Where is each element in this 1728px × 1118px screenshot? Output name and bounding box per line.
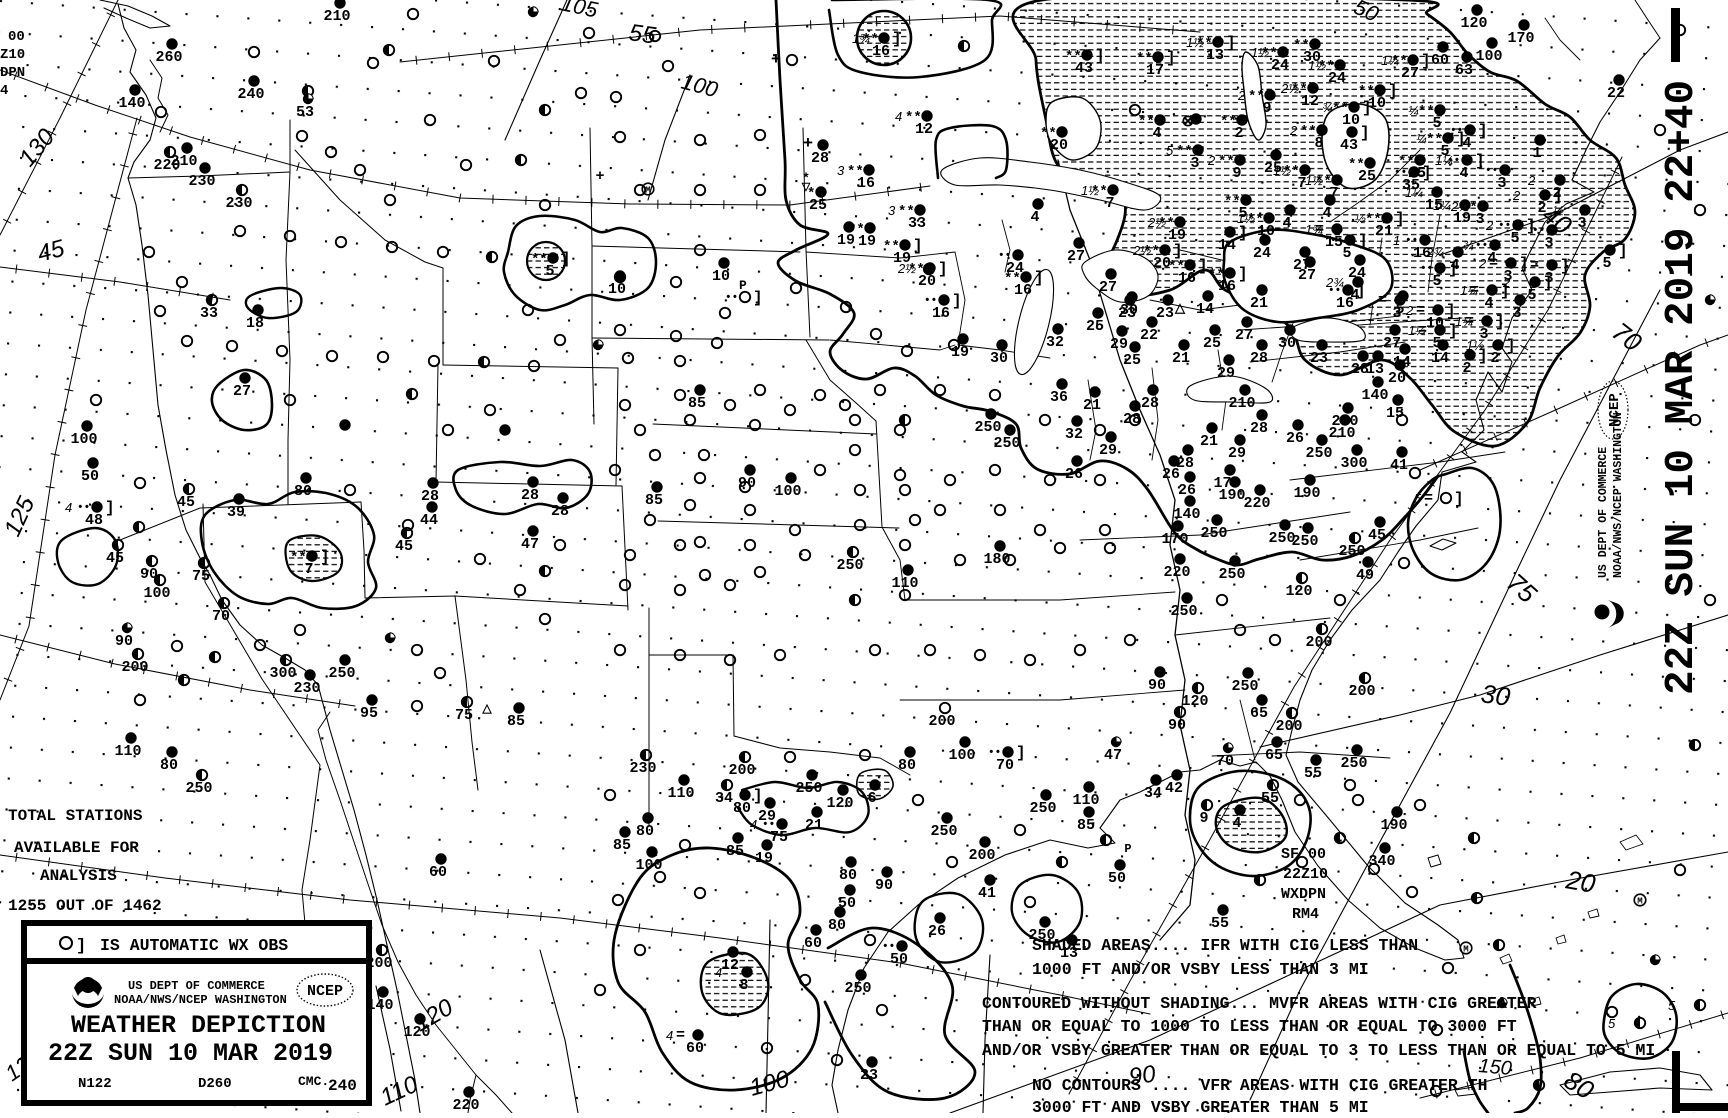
svg-text:250: 250 bbox=[844, 980, 871, 997]
svg-text:25: 25 bbox=[1123, 352, 1141, 369]
svg-text:85: 85 bbox=[507, 713, 525, 730]
svg-text:2: 2 bbox=[1512, 188, 1521, 203]
svg-text:85: 85 bbox=[688, 395, 706, 412]
svg-text:21: 21 bbox=[1083, 397, 1101, 414]
svg-text:100: 100 bbox=[948, 747, 975, 764]
svg-text:14: 14 bbox=[1218, 237, 1236, 254]
svg-text:4: 4 bbox=[1487, 250, 1496, 267]
svg-text:26: 26 bbox=[928, 923, 946, 940]
svg-text:25: 25 bbox=[1086, 318, 1104, 335]
svg-text:]: ] bbox=[1448, 260, 1458, 278]
svg-text:M: M bbox=[1463, 945, 1468, 955]
svg-text:20: 20 bbox=[1563, 864, 1598, 899]
svg-text:2: 2 bbox=[1485, 218, 1494, 233]
svg-text:60: 60 bbox=[804, 935, 822, 952]
svg-text:]: ] bbox=[1166, 49, 1176, 67]
svg-text:**: ** bbox=[1283, 164, 1300, 180]
svg-text:5: 5 bbox=[1510, 230, 1519, 247]
svg-text:5: 5 bbox=[1414, 491, 1422, 506]
svg-text:]: ] bbox=[1238, 265, 1248, 283]
svg-text:]: ] bbox=[938, 260, 948, 278]
svg-text:**: ** bbox=[1318, 59, 1335, 75]
svg-text:29: 29 bbox=[1110, 336, 1128, 353]
svg-text:230: 230 bbox=[629, 760, 656, 777]
svg-text:100: 100 bbox=[70, 431, 97, 448]
svg-text:]: ] bbox=[753, 787, 763, 805]
svg-text:]: ] bbox=[1095, 47, 1105, 65]
svg-text:5: 5 bbox=[1432, 335, 1441, 352]
svg-text:3: 3 bbox=[1512, 305, 1521, 322]
svg-text:4: 4 bbox=[1322, 205, 1331, 222]
svg-text:190: 190 bbox=[1293, 485, 1320, 502]
svg-text:250: 250 bbox=[185, 780, 212, 797]
svg-text:80: 80 bbox=[636, 823, 654, 840]
svg-text:]: ] bbox=[1388, 82, 1398, 100]
svg-text:2¾: 2¾ bbox=[1325, 275, 1344, 290]
svg-text:65: 65 bbox=[1265, 747, 1283, 764]
svg-text:AVAILABLE FOR: AVAILABLE FOR bbox=[14, 839, 139, 857]
svg-text:]: ] bbox=[1495, 313, 1505, 331]
svg-text:32: 32 bbox=[1046, 334, 1064, 351]
svg-text:]: ] bbox=[1034, 269, 1044, 287]
svg-text:250: 250 bbox=[795, 780, 822, 797]
svg-text:4: 4 bbox=[895, 109, 902, 124]
svg-text:28: 28 bbox=[1141, 395, 1159, 412]
svg-text:55: 55 bbox=[1304, 765, 1322, 782]
svg-text:**: ** bbox=[1358, 84, 1375, 100]
svg-text:**: ** bbox=[1224, 194, 1241, 210]
svg-text:**: ** bbox=[1315, 174, 1332, 190]
svg-text:170: 170 bbox=[1213, 475, 1240, 492]
svg-text:30: 30 bbox=[1278, 335, 1296, 352]
svg-text:27: 27 bbox=[1235, 327, 1253, 344]
svg-text:27: 27 bbox=[1383, 335, 1401, 352]
svg-text:27: 27 bbox=[233, 383, 251, 400]
svg-text:**: ** bbox=[862, 32, 879, 48]
svg-text:22: 22 bbox=[1140, 327, 1158, 344]
svg-text:300: 300 bbox=[269, 665, 296, 682]
svg-text:120: 120 bbox=[826, 795, 853, 812]
svg-text:24: 24 bbox=[1006, 260, 1024, 277]
svg-text:200: 200 bbox=[1305, 634, 1332, 651]
svg-text:WEATHER DEPICTION: WEATHER DEPICTION bbox=[71, 1011, 326, 1040]
svg-text:]: ] bbox=[1226, 34, 1236, 52]
svg-text:**: ** bbox=[1208, 267, 1225, 283]
svg-text:P: P bbox=[739, 278, 747, 293]
svg-text:M: M bbox=[645, 186, 650, 196]
svg-text:49: 49 bbox=[1356, 567, 1374, 584]
svg-text:110: 110 bbox=[667, 785, 694, 802]
svg-text:80: 80 bbox=[828, 917, 846, 934]
svg-text:10: 10 bbox=[712, 268, 730, 285]
svg-text:**: ** bbox=[1291, 82, 1308, 98]
svg-text:**: ** bbox=[1248, 89, 1265, 105]
svg-text:••: •• bbox=[1498, 220, 1511, 232]
svg-text:190: 190 bbox=[1380, 817, 1407, 834]
svg-text:]: ] bbox=[1173, 242, 1183, 260]
svg-text:5: 5 bbox=[1668, 998, 1676, 1013]
svg-text:CMC.: CMC. bbox=[298, 1074, 329, 1089]
svg-text:27: 27 bbox=[1099, 279, 1117, 296]
svg-text:]: ] bbox=[76, 937, 86, 956]
svg-text:28: 28 bbox=[521, 487, 539, 504]
svg-text:60: 60 bbox=[429, 864, 447, 881]
svg-text:50: 50 bbox=[81, 468, 99, 485]
svg-text:••: •• bbox=[725, 292, 738, 304]
svg-text:19: 19 bbox=[951, 344, 969, 361]
svg-text:Z10: Z10 bbox=[0, 47, 25, 63]
svg-text:••: •• bbox=[882, 941, 895, 953]
svg-text:14: 14 bbox=[1393, 354, 1411, 371]
svg-text:41: 41 bbox=[978, 885, 996, 902]
svg-text:]: ] bbox=[892, 30, 902, 48]
svg-text:85: 85 bbox=[645, 492, 663, 509]
svg-text:29: 29 bbox=[758, 808, 776, 825]
svg-text:14: 14 bbox=[1196, 301, 1214, 318]
svg-text:41: 41 bbox=[1390, 457, 1408, 474]
svg-text:80: 80 bbox=[160, 757, 178, 774]
svg-text:210: 210 bbox=[323, 8, 350, 25]
svg-text:240: 240 bbox=[237, 86, 264, 103]
svg-text:3: 3 bbox=[1544, 270, 1553, 287]
svg-text:90: 90 bbox=[115, 633, 133, 650]
svg-text:250: 250 bbox=[1200, 525, 1227, 542]
svg-text:NCEP: NCEP bbox=[1607, 393, 1623, 427]
svg-text:250: 250 bbox=[1340, 755, 1367, 772]
svg-text:••: •• bbox=[1485, 165, 1498, 177]
svg-text:43: 43 bbox=[1340, 137, 1358, 154]
svg-text:**: ** bbox=[1143, 244, 1160, 260]
svg-text:34: 34 bbox=[715, 790, 733, 807]
svg-text:2: 2 bbox=[1462, 360, 1471, 377]
svg-text:]: ] bbox=[1519, 255, 1529, 273]
svg-text:210: 210 bbox=[1228, 395, 1255, 412]
svg-text:50: 50 bbox=[890, 951, 908, 968]
svg-text:80: 80 bbox=[839, 867, 857, 884]
svg-text:]: ] bbox=[1560, 257, 1570, 275]
svg-text:**: ** bbox=[1168, 259, 1185, 275]
svg-text:2: 2 bbox=[1289, 123, 1298, 138]
svg-text:85: 85 bbox=[613, 837, 631, 854]
svg-text:45: 45 bbox=[177, 494, 195, 511]
svg-text:DPN: DPN bbox=[0, 65, 25, 81]
svg-text:23: 23 bbox=[1310, 350, 1328, 367]
svg-text:28: 28 bbox=[1123, 411, 1141, 428]
svg-text:30: 30 bbox=[1120, 302, 1138, 319]
svg-text:]: ] bbox=[1198, 257, 1208, 275]
svg-text:240: 240 bbox=[328, 1077, 357, 1095]
svg-text:△: △ bbox=[1174, 301, 1186, 316]
svg-text:45: 45 bbox=[395, 538, 413, 555]
svg-text:200: 200 bbox=[1275, 718, 1302, 735]
svg-text:TOTAL STATIONS: TOTAL STATIONS bbox=[8, 807, 143, 825]
svg-text:250: 250 bbox=[328, 665, 355, 682]
svg-text:170: 170 bbox=[1161, 531, 1188, 548]
svg-text:29: 29 bbox=[1099, 442, 1117, 459]
svg-text:NO CONTOURS .... VFR AREAS WIT: NO CONTOURS .... VFR AREAS WITH CIG GREA… bbox=[1032, 1076, 1487, 1095]
svg-text:90: 90 bbox=[875, 877, 893, 894]
svg-text:25: 25 bbox=[1203, 335, 1221, 352]
svg-text:**: ** bbox=[1040, 126, 1057, 142]
svg-text:½: ½ bbox=[1553, 203, 1564, 218]
svg-text:]: ] bbox=[1448, 322, 1458, 340]
svg-text:120: 120 bbox=[403, 1024, 430, 1041]
svg-text:27: 27 bbox=[1298, 267, 1316, 284]
svg-text:250: 250 bbox=[1029, 800, 1056, 817]
svg-text:70: 70 bbox=[1216, 753, 1234, 770]
svg-text:**: ** bbox=[1176, 144, 1193, 160]
svg-text:3: 3 bbox=[1497, 175, 1506, 192]
svg-text:N122: N122 bbox=[78, 1076, 112, 1092]
svg-text:US DEPT OF COMMERCE: US DEPT OF COMMERCE bbox=[1597, 447, 1610, 578]
svg-text:45: 45 bbox=[106, 550, 124, 567]
svg-text:**: ** bbox=[1332, 101, 1349, 117]
svg-text:=: = bbox=[1470, 282, 1479, 299]
svg-text:95: 95 bbox=[360, 705, 378, 722]
svg-text:2: 2 bbox=[1207, 153, 1216, 168]
svg-text:**: ** bbox=[1261, 46, 1278, 62]
svg-text:53: 53 bbox=[296, 104, 314, 121]
svg-text:90: 90 bbox=[1148, 677, 1166, 694]
svg-text:250: 250 bbox=[1170, 603, 1197, 620]
svg-text:200: 200 bbox=[121, 659, 148, 676]
svg-text:85: 85 bbox=[1077, 817, 1095, 834]
svg-text:55: 55 bbox=[1261, 790, 1279, 807]
svg-text:••: •• bbox=[77, 502, 90, 514]
svg-text:28: 28 bbox=[1250, 420, 1268, 437]
svg-text:**: ** bbox=[883, 239, 900, 255]
svg-text:100: 100 bbox=[774, 483, 801, 500]
svg-text:=: = bbox=[1378, 292, 1387, 309]
svg-text:80: 80 bbox=[733, 800, 751, 817]
svg-text:=: = bbox=[1424, 490, 1433, 507]
svg-text:4: 4 bbox=[750, 817, 757, 832]
svg-text:28: 28 bbox=[551, 503, 569, 520]
svg-text:30: 30 bbox=[990, 350, 1008, 367]
svg-text:28: 28 bbox=[811, 150, 829, 167]
svg-text:••: •• bbox=[998, 250, 1011, 262]
svg-text:ANALYSIS: ANALYSIS bbox=[40, 867, 117, 885]
svg-text:5: 5 bbox=[1527, 287, 1536, 304]
svg-text:250: 250 bbox=[1218, 566, 1245, 583]
svg-text:WXDPN: WXDPN bbox=[1281, 886, 1326, 903]
svg-text:220: 220 bbox=[452, 1097, 479, 1113]
svg-text:10: 10 bbox=[608, 281, 626, 298]
svg-text:1¼: 1¼ bbox=[1405, 185, 1423, 200]
svg-text:120: 120 bbox=[1285, 583, 1312, 600]
svg-text:4: 4 bbox=[1350, 287, 1359, 304]
svg-text:8: 8 bbox=[739, 977, 748, 994]
svg-text:340: 340 bbox=[1368, 853, 1395, 870]
svg-text:]: ] bbox=[1478, 122, 1488, 140]
svg-text:19: 19 bbox=[1453, 210, 1471, 227]
svg-text:2: 2 bbox=[1237, 88, 1246, 103]
svg-text:1: 1 bbox=[1393, 233, 1400, 248]
svg-text:]: ] bbox=[1500, 282, 1510, 300]
svg-text:250: 250 bbox=[1231, 678, 1258, 695]
svg-text:••: •• bbox=[1420, 263, 1433, 275]
svg-text:]: ] bbox=[561, 250, 571, 268]
svg-text:D260: D260 bbox=[198, 1076, 232, 1092]
svg-text:19: 19 bbox=[755, 850, 773, 867]
svg-text:**: ** bbox=[1398, 154, 1415, 170]
svg-text:140: 140 bbox=[1361, 387, 1388, 404]
svg-text:47: 47 bbox=[1104, 747, 1122, 764]
svg-text:]: ] bbox=[1553, 187, 1563, 205]
svg-text:300: 300 bbox=[1340, 455, 1367, 472]
svg-text:27: 27 bbox=[1067, 248, 1085, 265]
svg-text:**: ** bbox=[1247, 212, 1264, 228]
svg-text:21: 21 bbox=[805, 817, 823, 834]
svg-text:AND/OR VSBY GREATER THAN OR EQ: AND/OR VSBY GREATER THAN OR EQUAL TO 3 T… bbox=[982, 1041, 1655, 1060]
svg-text:]: ] bbox=[1016, 744, 1026, 762]
svg-text:230: 230 bbox=[225, 195, 252, 212]
svg-text:250: 250 bbox=[930, 823, 957, 840]
svg-text:**: ** bbox=[1091, 184, 1108, 200]
svg-text:**: ** bbox=[1136, 51, 1153, 67]
svg-text:2: 2 bbox=[1527, 173, 1536, 188]
svg-text:170: 170 bbox=[1507, 30, 1534, 47]
svg-text:⊗: ⊗ bbox=[1181, 113, 1194, 131]
svg-text:2: 2 bbox=[1405, 303, 1414, 318]
svg-text:180: 180 bbox=[983, 551, 1010, 568]
svg-text:SF 00: SF 00 bbox=[1281, 846, 1326, 863]
svg-text:42: 42 bbox=[1165, 780, 1183, 797]
svg-text:39: 39 bbox=[227, 504, 245, 521]
svg-text:M: M bbox=[1637, 897, 1642, 907]
svg-text:1: 1 bbox=[1532, 145, 1541, 162]
svg-text:60: 60 bbox=[1431, 52, 1449, 69]
svg-text:**: ** bbox=[1293, 38, 1310, 54]
svg-text:1¼: 1¼ bbox=[1433, 198, 1451, 213]
svg-text:250: 250 bbox=[993, 435, 1020, 452]
svg-text:4: 4 bbox=[666, 1028, 673, 1043]
svg-text:P: P bbox=[1124, 842, 1131, 856]
svg-text:]: ] bbox=[913, 237, 923, 255]
svg-text:SHADED AREAS.... IFR WITH CIG: SHADED AREAS.... IFR WITH CIG LESS THAN bbox=[1032, 936, 1418, 955]
svg-text:12: 12 bbox=[721, 957, 739, 974]
svg-text:4: 4 bbox=[1484, 295, 1493, 312]
svg-text:IS AUTOMATIC WX OBS: IS AUTOMATIC WX OBS bbox=[100, 936, 288, 955]
svg-text:RM4: RM4 bbox=[1292, 906, 1319, 923]
svg-text:250: 250 bbox=[836, 557, 863, 574]
svg-text:¾: ¾ bbox=[1463, 238, 1474, 253]
svg-text:4: 4 bbox=[1459, 165, 1468, 182]
svg-text:+: + bbox=[771, 51, 781, 70]
svg-text:32: 32 bbox=[1065, 426, 1083, 443]
svg-text:••: •• bbox=[1405, 235, 1418, 247]
svg-text:29: 29 bbox=[1228, 445, 1246, 462]
svg-text:220: 220 bbox=[1243, 495, 1270, 512]
svg-text:4: 4 bbox=[0, 83, 8, 99]
svg-text:28: 28 bbox=[1176, 455, 1194, 472]
svg-text:250: 250 bbox=[1338, 543, 1365, 560]
svg-text:3: 3 bbox=[837, 163, 845, 178]
svg-text:]: ] bbox=[952, 292, 962, 310]
svg-text:22Z SUN 10 MAR 2019 22+40: 22Z SUN 10 MAR 2019 22+40 bbox=[1659, 80, 1705, 695]
svg-text:75: 75 bbox=[455, 707, 473, 724]
svg-text:30: 30 bbox=[1479, 678, 1512, 712]
svg-text:20: 20 bbox=[1388, 370, 1406, 387]
svg-text:••: •• bbox=[1447, 155, 1460, 167]
svg-text:••: •• bbox=[988, 747, 1001, 759]
svg-text:210: 210 bbox=[1328, 425, 1355, 442]
svg-text:NCEP: NCEP bbox=[307, 983, 343, 1000]
svg-text:]: ] bbox=[1478, 347, 1488, 365]
svg-text:**: ** bbox=[1426, 132, 1443, 148]
svg-text:]: ] bbox=[1358, 232, 1368, 250]
svg-text:100: 100 bbox=[143, 585, 170, 602]
svg-text:36: 36 bbox=[1050, 389, 1068, 406]
svg-text:200: 200 bbox=[928, 713, 955, 730]
svg-text:**: ** bbox=[1218, 154, 1235, 170]
svg-text:+: + bbox=[595, 168, 604, 185]
svg-text:2: 2 bbox=[1537, 200, 1546, 217]
svg-text:2: 2 bbox=[1478, 256, 1487, 271]
svg-text:]: ] bbox=[105, 499, 115, 517]
svg-text:80: 80 bbox=[294, 483, 312, 500]
svg-text:24: 24 bbox=[1253, 245, 1271, 262]
svg-text:**: ** bbox=[1348, 157, 1365, 173]
svg-text:**: ** bbox=[1158, 216, 1175, 232]
svg-text:]: ] bbox=[1395, 210, 1405, 228]
svg-text:CONTOURED WITHOUT SHADING... M: CONTOURED WITHOUT SHADING... MVFR AREAS … bbox=[982, 994, 1537, 1013]
svg-text:5: 5 bbox=[1166, 143, 1174, 158]
svg-text:9: 9 bbox=[1199, 810, 1208, 827]
svg-text:21: 21 bbox=[1172, 350, 1190, 367]
svg-text:75: 75 bbox=[770, 829, 788, 846]
svg-text:1255 OUT OF 1462: 1255 OUT OF 1462 bbox=[8, 897, 162, 915]
svg-text:4: 4 bbox=[1030, 209, 1039, 226]
svg-text:200: 200 bbox=[728, 762, 755, 779]
svg-text:16: 16 bbox=[1413, 245, 1431, 262]
svg-text:••: •• bbox=[924, 295, 937, 307]
svg-text:4: 4 bbox=[1232, 815, 1241, 832]
svg-text:50: 50 bbox=[1108, 870, 1126, 887]
svg-text:48: 48 bbox=[85, 512, 103, 529]
svg-text:3000 FT AND VSBY GREATER THAN: 3000 FT AND VSBY GREATER THAN 5 MI bbox=[1032, 1098, 1369, 1113]
svg-text:120: 120 bbox=[1181, 693, 1208, 710]
svg-text:00: 00 bbox=[8, 29, 25, 45]
svg-text:**: ** bbox=[1065, 49, 1082, 65]
svg-text:55: 55 bbox=[627, 19, 658, 50]
svg-text:200: 200 bbox=[968, 847, 995, 864]
svg-text:100: 100 bbox=[1475, 48, 1502, 65]
svg-text:22Z10: 22Z10 bbox=[1283, 866, 1328, 883]
svg-text:250: 250 bbox=[974, 419, 1001, 436]
svg-text:200: 200 bbox=[1348, 683, 1375, 700]
svg-text:260: 260 bbox=[155, 49, 182, 66]
svg-text:=: = bbox=[1418, 322, 1427, 339]
svg-text:75: 75 bbox=[192, 568, 210, 585]
svg-text:5: 5 bbox=[1432, 273, 1441, 290]
svg-text:110: 110 bbox=[114, 743, 141, 760]
svg-text:85: 85 bbox=[726, 843, 744, 860]
svg-text:28: 28 bbox=[1250, 350, 1268, 367]
svg-text:=: = bbox=[1530, 257, 1539, 274]
svg-text:4: 4 bbox=[715, 965, 722, 980]
svg-text:]: ] bbox=[1360, 124, 1370, 142]
svg-text:18: 18 bbox=[246, 315, 264, 332]
svg-text:△: △ bbox=[481, 702, 492, 716]
svg-text:140: 140 bbox=[118, 95, 145, 112]
svg-text:29: 29 bbox=[1217, 365, 1235, 382]
svg-text:22Z SUN 10 MAR 2019: 22Z SUN 10 MAR 2019 bbox=[48, 1039, 333, 1068]
svg-text:250: 250 bbox=[1305, 445, 1332, 462]
svg-text:26: 26 bbox=[1065, 466, 1083, 483]
svg-text:90: 90 bbox=[1168, 717, 1186, 734]
svg-text:4: 4 bbox=[1462, 135, 1471, 152]
